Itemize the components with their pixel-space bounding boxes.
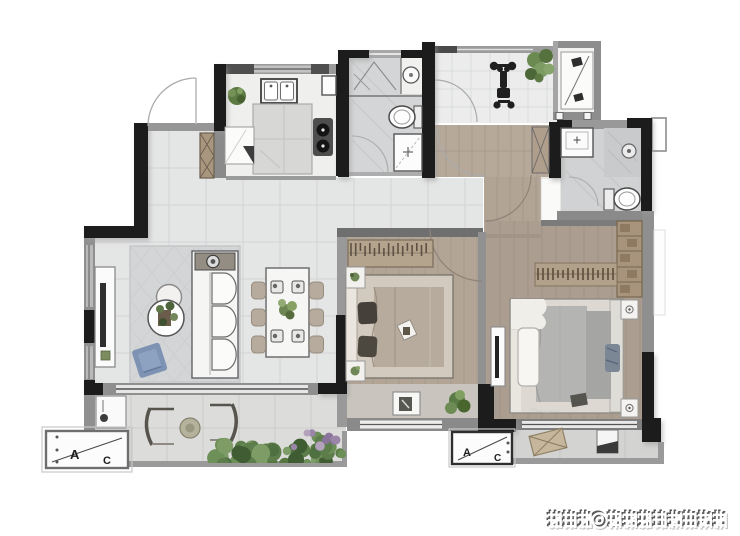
svg-text:A: A bbox=[463, 447, 471, 459]
svg-text:A: A bbox=[70, 447, 80, 462]
svg-text:C: C bbox=[494, 453, 501, 464]
svg-text:C: C bbox=[103, 455, 111, 467]
